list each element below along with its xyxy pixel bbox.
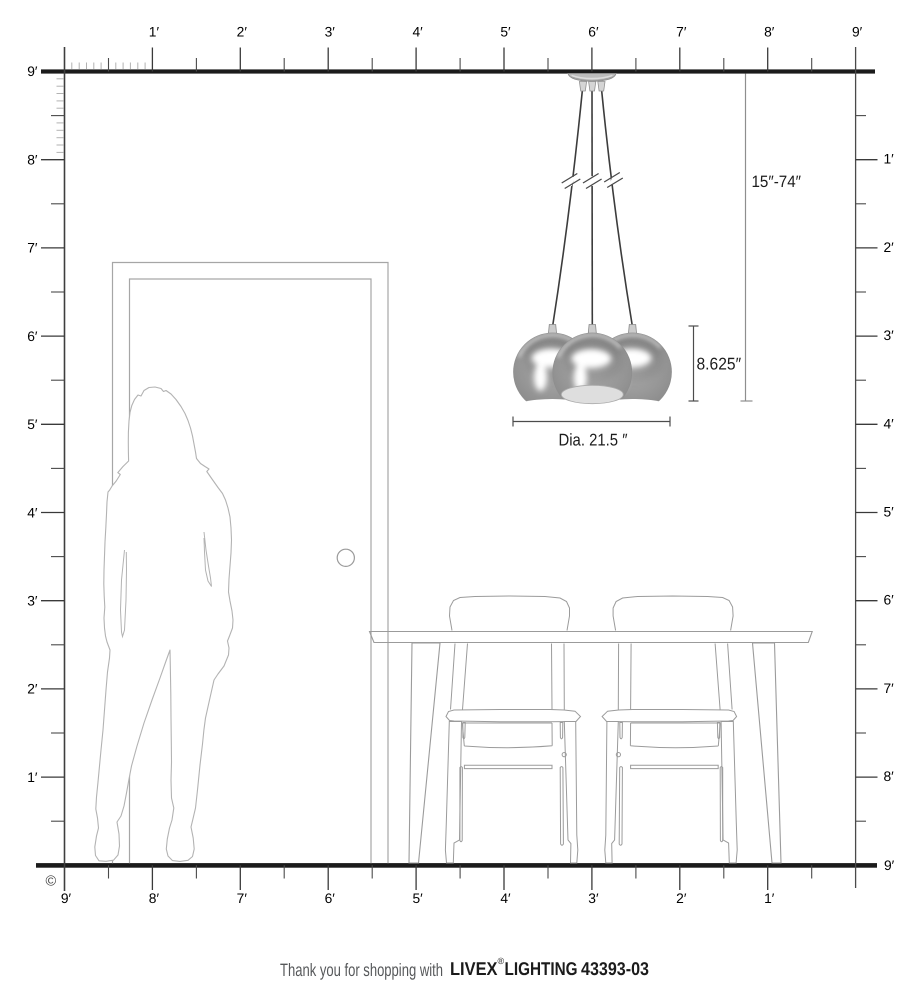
svg-text:5′: 5′ [884, 505, 895, 520]
svg-text:LIGHTING: LIGHTING [505, 958, 578, 979]
svg-text:9′: 9′ [884, 858, 895, 873]
svg-text:9′: 9′ [61, 891, 72, 906]
svg-text:43393-03: 43393-03 [581, 958, 649, 979]
svg-text:2′: 2′ [27, 682, 38, 697]
svg-text:1′: 1′ [149, 25, 160, 40]
svg-text:4′: 4′ [500, 891, 511, 906]
svg-text:©: © [46, 874, 57, 890]
svg-text:7′: 7′ [884, 681, 895, 696]
svg-text:2′: 2′ [676, 891, 687, 906]
svg-text:8′: 8′ [149, 891, 160, 906]
svg-text:6′: 6′ [588, 25, 599, 40]
svg-text:3′: 3′ [884, 328, 895, 343]
svg-text:1′: 1′ [27, 770, 38, 785]
svg-text:4′: 4′ [27, 505, 38, 520]
svg-text:6′: 6′ [27, 329, 38, 344]
svg-text:1′: 1′ [884, 152, 895, 167]
svg-text:4′: 4′ [412, 25, 423, 40]
svg-text:9′: 9′ [852, 25, 863, 40]
svg-text:4′: 4′ [884, 416, 895, 431]
svg-text:5′: 5′ [27, 417, 38, 432]
svg-text:8′: 8′ [27, 153, 38, 168]
svg-text:9′: 9′ [27, 64, 38, 79]
svg-text:3′: 3′ [588, 891, 599, 906]
svg-text:3′: 3′ [27, 594, 38, 609]
svg-text:5′: 5′ [412, 891, 423, 906]
svg-text:5′: 5′ [500, 25, 511, 40]
svg-text:Thank you for shopping with: Thank you for shopping with [280, 960, 443, 980]
svg-text:6′: 6′ [325, 891, 336, 906]
svg-text:®: ® [498, 956, 505, 966]
svg-text:8.625″: 8.625″ [697, 354, 742, 373]
svg-text:6′: 6′ [884, 593, 895, 608]
svg-text:3′: 3′ [325, 25, 336, 40]
svg-text:8′: 8′ [884, 769, 895, 784]
svg-text:LIVEX: LIVEX [450, 958, 498, 979]
svg-text:7′: 7′ [27, 241, 38, 256]
svg-text:7′: 7′ [676, 25, 687, 40]
svg-text:1′: 1′ [764, 891, 775, 906]
svg-text:15″-74″: 15″-74″ [752, 173, 802, 191]
svg-text:2′: 2′ [237, 25, 248, 40]
svg-text:7′: 7′ [237, 891, 248, 906]
svg-text:2′: 2′ [884, 240, 895, 255]
svg-text:8′: 8′ [764, 25, 775, 40]
svg-text:Dia. 21.5 ″: Dia. 21.5 ″ [559, 430, 628, 449]
